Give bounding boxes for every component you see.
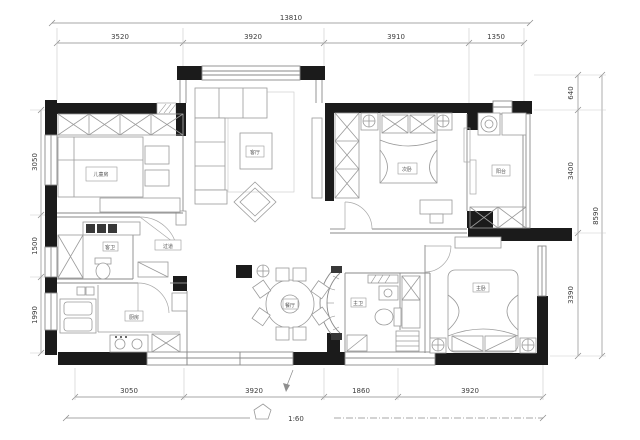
dim-top-2: 3920 (244, 33, 262, 41)
room-living: 客厅 (195, 88, 322, 222)
dim-bottom-4: 3920 (461, 387, 479, 395)
dim-right-2: 3400 (567, 162, 575, 180)
dim-top-3: 3910 (387, 33, 405, 41)
dim-left-1: 3050 (31, 153, 39, 171)
window-left-3 (45, 293, 57, 330)
wardrobe-icon (335, 113, 359, 198)
floor-plan-drawing: 13810 3520 3920 3910 1350 3050 1500 1990 (0, 0, 640, 440)
dim-top-1: 3520 (111, 33, 129, 41)
window-left-2 (45, 247, 57, 277)
shower-icon (347, 335, 367, 351)
room-bedroom2: 次卧 (335, 113, 452, 223)
dim-right-1: 640 (567, 86, 575, 99)
laundry-cabinet-icon (83, 222, 140, 235)
window-bottom-bath (345, 352, 435, 365)
washing-machine-icon (478, 113, 500, 135)
shower-icon (58, 235, 83, 278)
room-label-study: 儿童房 (93, 171, 108, 178)
drawer-unit-icon (396, 331, 419, 352)
chair-icon (276, 327, 289, 340)
window-left-1 (45, 135, 57, 185)
room-balcony: 阳台 (470, 113, 526, 228)
room-label-master: 主卧 (476, 285, 486, 292)
room-label-balcony: 阳台 (496, 168, 506, 175)
scale-marker-icon (254, 404, 271, 419)
window-bottom-dining (187, 352, 293, 365)
dim-left-3: 1990 (31, 306, 39, 324)
toilet-icon (95, 258, 111, 279)
base-cabinet-icon (152, 334, 180, 352)
scale-label: 1:60 (288, 415, 304, 423)
fridge-icon (172, 293, 187, 311)
room-label-hall: 过道 (163, 243, 173, 250)
shelf-icon (368, 275, 398, 283)
floor-plan-page: 13810 3520 3920 3910 1350 3050 1500 1990 (0, 0, 640, 440)
room-label-dining: 餐厅 (285, 302, 295, 309)
window-balcony-top (493, 101, 512, 114)
wardrobe-icon (58, 114, 183, 135)
nightstand-lamp-icon (435, 113, 452, 130)
double-bed-icon (448, 270, 518, 352)
room-master-bath: 主卫 (347, 275, 420, 352)
dim-top-4: 1350 (487, 33, 505, 41)
room-dining: 餐厅 (252, 268, 330, 340)
dim-top-total: 13810 (280, 14, 302, 22)
arch-partition (320, 266, 342, 340)
ceiling-lamp-icon (257, 265, 269, 277)
chair-icon (276, 268, 289, 281)
room-guest-bath: 客卫 过道 (58, 222, 181, 279)
dimension-chain-bottom: 3050 3920 1860 3920 1:60 (63, 362, 546, 423)
chair-icon (293, 327, 306, 340)
double-sink-icon (60, 299, 96, 333)
dim-bottom-2: 3920 (245, 387, 263, 395)
counter-item-icon (86, 287, 94, 295)
room-label-kitchen: 厨房 (129, 314, 139, 321)
toilet-icon (375, 308, 401, 326)
cooktop-icon (110, 335, 148, 352)
dim-bottom-1: 3050 (120, 387, 138, 395)
room-kitchen: 厨房 (60, 285, 187, 352)
room-label-bedroom2: 次卧 (402, 166, 412, 173)
side-table-icon (145, 170, 169, 186)
desk-icon (420, 200, 452, 214)
bathroom-sink-icon (379, 286, 398, 300)
counter-item-icon (77, 287, 85, 295)
room-master: 主卧 (430, 270, 536, 353)
tv-cabinet-icon (312, 118, 322, 198)
dim-left-2: 1500 (31, 237, 39, 255)
room-label-living: 客厅 (250, 149, 260, 156)
dim-right-total: 8590 (592, 207, 600, 225)
window-master-right (538, 246, 546, 296)
room-label-master-bath: 主卫 (353, 300, 363, 307)
room-label-guest-bath: 客卫 (105, 244, 115, 251)
entry-arrow-icon (283, 370, 293, 392)
room-study: 儿童房 (58, 114, 183, 212)
dimension-chain-top: 13810 3520 3920 3910 1350 (49, 14, 533, 103)
stool-icon (430, 214, 443, 223)
dim-right-3: 3390 (567, 286, 575, 304)
utility-sink-icon (502, 113, 526, 135)
side-table-icon (145, 146, 169, 164)
diamond-rug-icon (234, 182, 276, 222)
nightstand-lamp-icon (520, 338, 536, 353)
nightstand-lamp-icon (361, 113, 378, 130)
window-bottom-kitchen (147, 352, 187, 365)
desk-cabinet-icon (100, 198, 180, 212)
nightstand-lamp-icon (430, 338, 446, 353)
wall-hatch-segment (157, 103, 176, 114)
chair-icon (293, 268, 306, 281)
wardrobe-icon (402, 276, 420, 328)
chair-icon (311, 281, 329, 299)
dim-bottom-3: 1860 (352, 387, 370, 395)
